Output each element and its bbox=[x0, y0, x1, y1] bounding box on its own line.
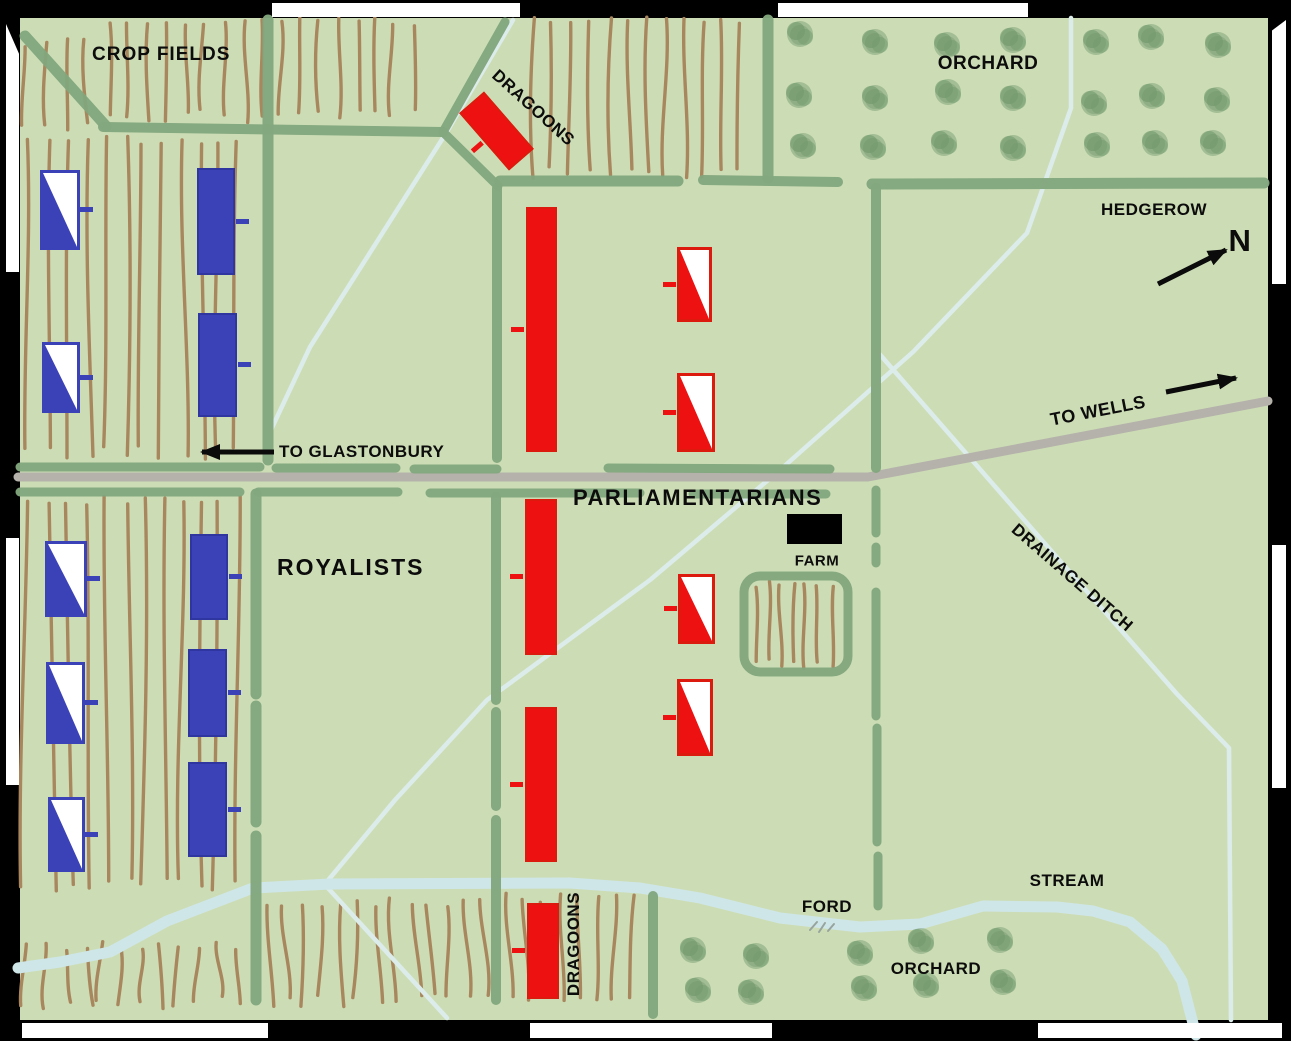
unit-facing-tick bbox=[238, 362, 251, 367]
unit-parliament-unit-5[interactable] bbox=[678, 574, 715, 644]
unit-diagonal-fill bbox=[43, 173, 77, 247]
unit-royalist-unit-9[interactable] bbox=[48, 797, 85, 872]
parliamentarians-label: PARLIAMENTARIANS bbox=[573, 485, 822, 511]
unit-facing-tick bbox=[236, 219, 249, 224]
orchard-south-label: ORCHARD bbox=[891, 959, 981, 979]
dragoons-south-label: DRAGOONS bbox=[564, 892, 584, 996]
unit-royalist-unit-4[interactable] bbox=[198, 313, 237, 417]
labels-layer: CROP FIELDS DRAGOONS ORCHARD HEDGEROW N … bbox=[0, 0, 1291, 1041]
unit-facing-tick bbox=[80, 207, 93, 212]
unit-facing-tick bbox=[510, 574, 523, 579]
unit-parliament-unit-7[interactable] bbox=[525, 707, 557, 862]
unit-royalist-unit-5[interactable] bbox=[45, 541, 87, 617]
unit-facing-tick bbox=[511, 327, 524, 332]
unit-royalist-unit-6[interactable] bbox=[190, 534, 228, 620]
unit-facing-tick bbox=[664, 606, 677, 611]
unit-facing-tick bbox=[80, 375, 93, 380]
compass-north-label: N bbox=[1229, 223, 1252, 259]
unit-facing-tick bbox=[228, 690, 241, 695]
unit-facing-tick bbox=[663, 282, 676, 287]
unit-diagonal-fill bbox=[51, 800, 82, 869]
hedgerow-label: HEDGEROW bbox=[1101, 200, 1207, 220]
unit-royalist-unit-10[interactable] bbox=[188, 762, 227, 857]
unit-diagonal-fill bbox=[680, 682, 710, 753]
battle-map: CROP FIELDS DRAGOONS ORCHARD HEDGEROW N … bbox=[0, 0, 1291, 1041]
unit-facing-tick bbox=[663, 410, 676, 415]
unit-parliament-unit-1[interactable] bbox=[526, 207, 557, 452]
unit-facing-tick bbox=[85, 700, 98, 705]
unit-facing-tick bbox=[510, 782, 523, 787]
unit-diagonal-fill bbox=[680, 250, 709, 319]
unit-facing-tick bbox=[87, 576, 100, 581]
unit-parliament-unit-2[interactable] bbox=[677, 247, 712, 322]
royalists-label: ROYALISTS bbox=[277, 554, 425, 581]
unit-diagonal-fill bbox=[681, 577, 712, 641]
unit-facing-tick bbox=[85, 832, 98, 837]
unit-diagonal-fill bbox=[45, 345, 77, 410]
orchard-north-label: ORCHARD bbox=[938, 53, 1039, 75]
unit-royalist-unit-8[interactable] bbox=[188, 649, 227, 737]
unit-diagonal-fill bbox=[680, 376, 712, 449]
unit-parliament-dragoons-south[interactable] bbox=[527, 903, 559, 999]
unit-facing-tick bbox=[512, 948, 525, 953]
to-wells-label: TO WELLS bbox=[1049, 391, 1148, 430]
unit-royalist-unit-2[interactable] bbox=[197, 168, 235, 275]
unit-royalist-unit-7[interactable] bbox=[46, 662, 85, 744]
unit-facing-tick bbox=[663, 715, 676, 720]
farm-label: FARM bbox=[795, 553, 840, 570]
unit-parliament-unit-4[interactable] bbox=[525, 499, 557, 655]
unit-parliament-unit-3[interactable] bbox=[677, 373, 715, 452]
stream-label: STREAM bbox=[1030, 871, 1105, 891]
unit-facing-tick bbox=[228, 807, 241, 812]
unit-parliament-unit-6[interactable] bbox=[677, 679, 713, 756]
to-glastonbury-label: TO GLASTONBURY bbox=[279, 442, 444, 462]
unit-facing-tick bbox=[229, 574, 242, 579]
unit-diagonal-fill bbox=[49, 665, 82, 741]
unit-diagonal-fill bbox=[48, 544, 84, 614]
unit-royalist-unit-3[interactable] bbox=[42, 342, 80, 413]
unit-royalist-unit-1[interactable] bbox=[40, 170, 80, 250]
ford-label: FORD bbox=[802, 897, 852, 917]
drainage-ditch-label: DRAINAGE DITCH bbox=[1007, 520, 1137, 636]
crop-fields-label: CROP FIELDS bbox=[92, 44, 230, 66]
